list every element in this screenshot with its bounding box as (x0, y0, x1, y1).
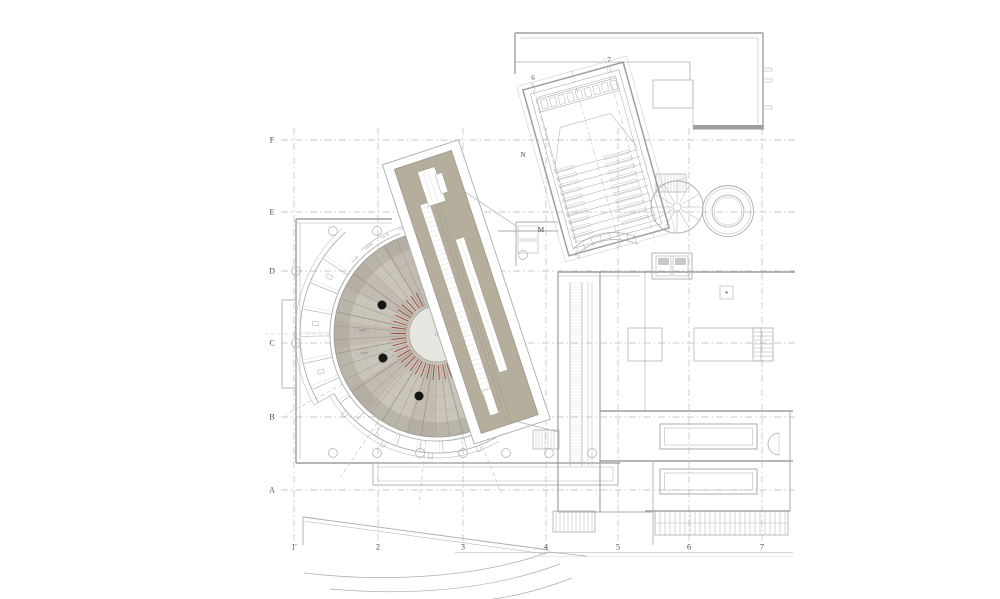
round-drum (703, 186, 754, 237)
hall-grid-label-N: N (520, 151, 525, 159)
grid-row-label-C: C (269, 339, 274, 348)
rim-level-label: +11.25 (350, 255, 359, 265)
floor-plan-drawing: +11.25+11.20+11.15+11.0511.2511.05FEDCBA… (0, 0, 1000, 599)
fixture (326, 274, 333, 280)
grid-col-label-6: 6 (687, 543, 691, 552)
grid-col-label-3: 3 (461, 543, 465, 552)
hall-grid-label-6: 6 (531, 74, 535, 82)
grid-row-label-D: D (269, 267, 275, 276)
grid-row-label-E: E (270, 208, 275, 217)
hall-grid-label-7: 7 (607, 56, 611, 64)
grid-col-label-5: 5 (616, 543, 620, 552)
grid-row-label-F: F (270, 136, 275, 145)
rim-level-label: +11.20 (364, 242, 374, 251)
grid-row-label-A: A (269, 486, 275, 495)
fixture (312, 321, 318, 326)
level-label: 11.25 (358, 328, 366, 332)
grid-row-label-B: B (269, 413, 274, 422)
fixture (318, 369, 325, 375)
fixture (380, 440, 386, 447)
level-label: 11.05 (360, 351, 368, 355)
grid-col-label-7: 7 (760, 543, 764, 552)
grid-col-label-2: 2 (376, 543, 380, 552)
grid-col-label-4: 4 (544, 543, 548, 552)
hall-grid-label-M: M (538, 226, 545, 234)
grid-col-label-1': 1' (291, 543, 297, 552)
floor-plan-page: +11.25+11.20+11.15+11.0511.2511.05FEDCBA… (0, 0, 1000, 599)
plaza-steps (303, 517, 586, 599)
